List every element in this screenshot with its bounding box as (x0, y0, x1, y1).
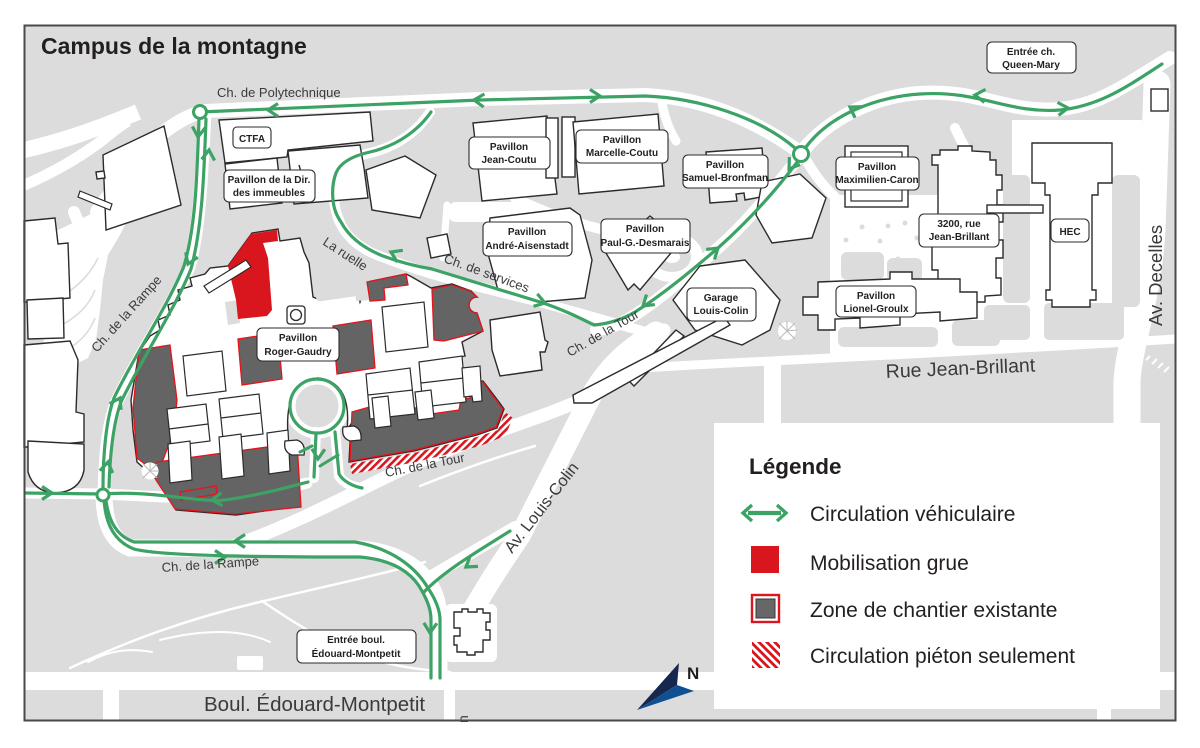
svg-text:CTFA: CTFA (239, 134, 265, 145)
svg-text:Zone de chantier existante: Zone de chantier existante (810, 599, 1058, 622)
svg-text:Mobilisation grue: Mobilisation grue (810, 552, 969, 575)
svg-text:Légende: Légende (749, 454, 842, 479)
svg-text:Ch. de Polytechnique: Ch. de Polytechnique (217, 85, 341, 100)
svg-text:Maximilien-Caron: Maximilien-Caron (835, 175, 918, 186)
svg-text:Louis-Colin: Louis-Colin (694, 306, 749, 317)
svg-text:Marcelle-Coutu: Marcelle-Coutu (586, 148, 658, 159)
svg-text:Garage: Garage (704, 293, 739, 304)
svg-text:n: n (455, 715, 471, 723)
svg-text:3200, rue: 3200, rue (937, 219, 981, 230)
svg-text:Paul-G.-Desmarais: Paul-G.-Desmarais (601, 238, 690, 249)
svg-text:Queen-Mary: Queen-Mary (1002, 60, 1060, 71)
svg-text:HEC: HEC (1059, 227, 1080, 238)
svg-text:Pavillon: Pavillon (626, 224, 664, 235)
svg-text:Jean-Coutu: Jean-Coutu (482, 155, 537, 166)
svg-text:Lionel-Groulx: Lionel-Groulx (844, 304, 909, 315)
svg-text:Pavillon: Pavillon (858, 162, 896, 173)
svg-text:Pavillon: Pavillon (857, 291, 895, 302)
svg-text:Entrée boul.: Entrée boul. (327, 635, 385, 646)
svg-text:Pavillon: Pavillon (279, 333, 317, 344)
svg-text:N: N (687, 664, 699, 683)
svg-text:Pavillon: Pavillon (603, 135, 641, 146)
svg-text:Av. Decelles: Av. Decelles (1145, 225, 1166, 326)
svg-text:Entrée ch.: Entrée ch. (1007, 47, 1056, 58)
svg-text:des immeubles: des immeubles (233, 188, 306, 199)
svg-text:Roger-Gaudry: Roger-Gaudry (264, 347, 332, 358)
svg-text:Édouard-Montpetit: Édouard-Montpetit (312, 647, 402, 660)
svg-text:André-Aisenstadt: André-Aisenstadt (485, 241, 569, 252)
svg-text:Boul. Édouard-Montpetit: Boul. Édouard-Montpetit (204, 693, 425, 716)
svg-text:Campus de la montagne: Campus de la montagne (41, 33, 307, 59)
svg-text:Circulation véhiculaire: Circulation véhiculaire (810, 503, 1015, 526)
svg-text:Pavillon: Pavillon (508, 227, 546, 238)
svg-text:Jean-Brillant: Jean-Brillant (929, 232, 990, 243)
svg-text:Circulation piéton seulement: Circulation piéton seulement (810, 645, 1075, 668)
svg-text:Pavillon de la Dir.: Pavillon de la Dir. (228, 175, 311, 186)
svg-text:Samuel-Bronfman: Samuel-Bronfman (682, 173, 768, 184)
svg-text:Pavillon: Pavillon (706, 160, 744, 171)
svg-text:Pavillon: Pavillon (490, 142, 528, 153)
